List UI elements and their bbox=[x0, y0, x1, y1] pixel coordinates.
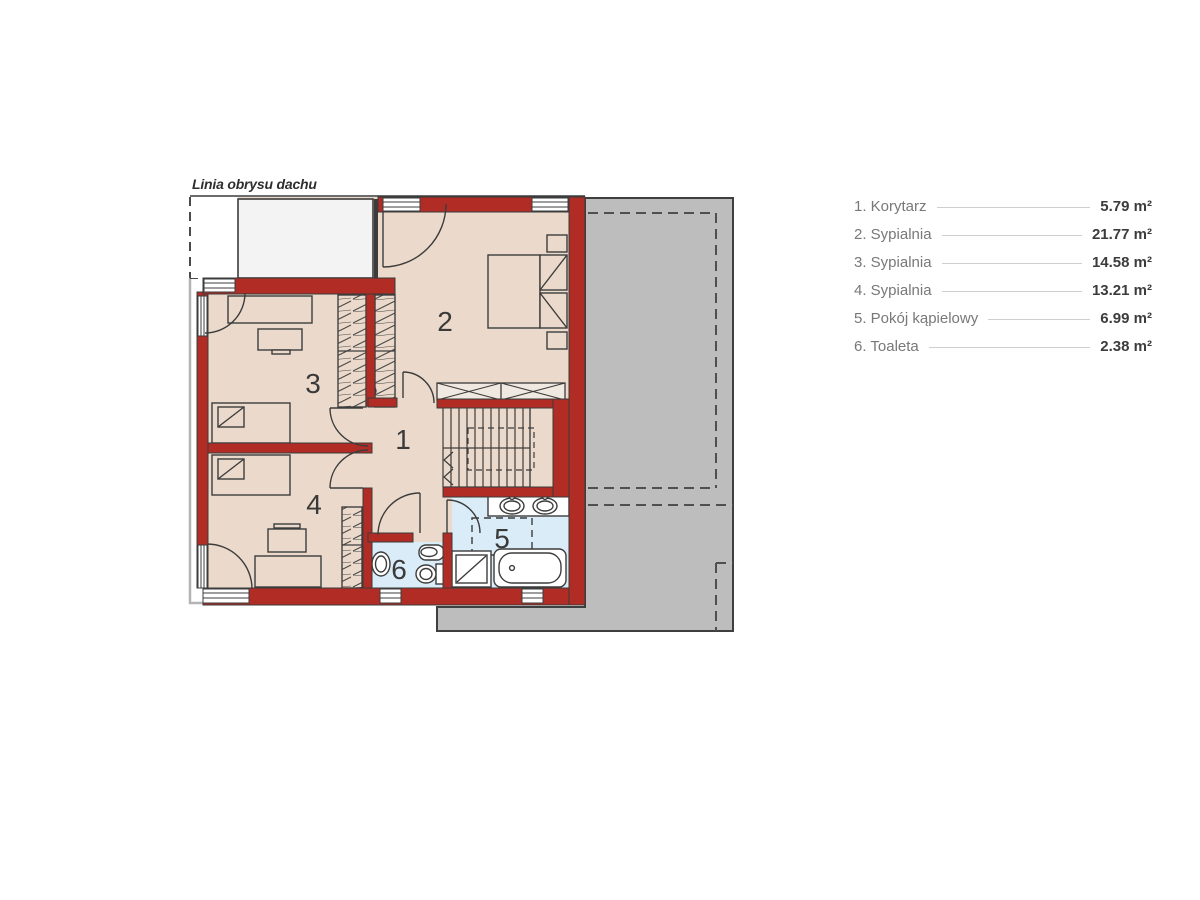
floor-plan: 1 2 3 4 5 6 bbox=[180, 170, 745, 640]
nightstand bbox=[547, 235, 567, 252]
wall-bath-toilet bbox=[443, 533, 452, 588]
bidet bbox=[419, 545, 444, 560]
window bbox=[204, 279, 235, 292]
balcony-void bbox=[238, 199, 373, 278]
window bbox=[203, 589, 249, 603]
room-label-sypialnia-2: 2 bbox=[437, 306, 453, 337]
legend-area-value: 13.21 m² bbox=[1092, 282, 1152, 299]
room-label-pokoj-kapielowy: 5 bbox=[494, 523, 510, 554]
wardrobe-room4 bbox=[342, 507, 362, 588]
legend-row-sypialnia-3: 3. Sypialnia 14.58 m² bbox=[854, 248, 1152, 276]
shower bbox=[452, 551, 491, 587]
floor-plan-page: Linia obrysu dachu bbox=[0, 0, 1200, 900]
window bbox=[198, 296, 207, 336]
balcony-partition bbox=[374, 199, 378, 278]
bathtub bbox=[494, 549, 566, 587]
monitor-stand bbox=[274, 524, 300, 528]
legend-row-pokoj-kapielowy: 5. Pokój kąpielowy 6.99 m² bbox=[854, 304, 1152, 332]
legend-row-korytarz: 1. Korytarz 5.79 m² bbox=[854, 192, 1152, 220]
room-label-korytarz: 1 bbox=[395, 424, 411, 455]
double-bed bbox=[488, 255, 540, 328]
window bbox=[532, 198, 568, 211]
wall-corridor-room2-stub bbox=[368, 398, 397, 407]
legend-row-toaleta: 6. Toaleta 2.38 m² bbox=[854, 332, 1152, 360]
wall-wardrobe-divider bbox=[366, 294, 375, 406]
legend-label: 5. Pokój kąpielowy bbox=[854, 310, 978, 327]
legend-leader-line bbox=[942, 291, 1082, 292]
wardrobe-room2 bbox=[375, 295, 395, 407]
legend-leader-line bbox=[942, 235, 1082, 236]
legend-label: 2. Sypialnia bbox=[854, 226, 932, 243]
legend-leader-line bbox=[937, 207, 1091, 208]
nightstand bbox=[547, 332, 567, 349]
legend-leader-line bbox=[929, 347, 1091, 348]
desk bbox=[255, 556, 321, 587]
legend-label: 6. Toaleta bbox=[854, 338, 919, 355]
monitor-stand bbox=[272, 350, 290, 354]
legend-label: 4. Sypialnia bbox=[854, 282, 932, 299]
legend-label: 3. Sypialnia bbox=[854, 254, 932, 271]
legend-row-sypialnia-4: 4. Sypialnia 13.21 m² bbox=[854, 276, 1152, 304]
legend-leader-line bbox=[988, 319, 1090, 320]
room-label-sypialnia-4: 4 bbox=[306, 489, 322, 520]
window bbox=[198, 545, 207, 588]
legend-area-value: 6.99 m² bbox=[1100, 310, 1152, 327]
floor-plan-svg: 1 2 3 4 5 6 bbox=[180, 170, 745, 640]
legend-leader-line bbox=[942, 263, 1082, 264]
room-legend: 1. Korytarz 5.79 m² 2. Sypialnia 21.77 m… bbox=[854, 192, 1152, 360]
window bbox=[380, 589, 401, 603]
desk bbox=[228, 296, 312, 323]
monitor bbox=[268, 529, 306, 552]
room-label-sypialnia-3: 3 bbox=[305, 368, 321, 399]
wall-right bbox=[569, 197, 585, 605]
wall-room3-room4 bbox=[208, 443, 372, 453]
legend-area-value: 2.38 m² bbox=[1100, 338, 1152, 355]
wardrobe-room3 bbox=[338, 295, 366, 407]
window bbox=[522, 589, 543, 603]
wall-stairs-bath bbox=[443, 487, 569, 497]
legend-label: 1. Korytarz bbox=[854, 198, 927, 215]
monitor bbox=[258, 329, 302, 350]
legend-row-sypialnia-2: 2. Sypialnia 21.77 m² bbox=[854, 220, 1152, 248]
outside-roof-zone bbox=[191, 197, 238, 278]
stair-balustrade bbox=[437, 383, 565, 400]
window bbox=[383, 198, 420, 211]
bed bbox=[212, 403, 290, 443]
wall-room2-bottom bbox=[437, 399, 569, 408]
wc bbox=[416, 564, 444, 584]
room-label-toaleta: 6 bbox=[391, 554, 407, 585]
legend-area-value: 14.58 m² bbox=[1092, 254, 1152, 271]
wall-stairwell-right bbox=[553, 399, 569, 497]
wall-corridor-toilet bbox=[368, 533, 413, 542]
washbasin bbox=[372, 552, 390, 576]
bed bbox=[212, 455, 290, 495]
legend-area-value: 21.77 m² bbox=[1092, 226, 1152, 243]
legend-area-value: 5.79 m² bbox=[1100, 198, 1152, 215]
